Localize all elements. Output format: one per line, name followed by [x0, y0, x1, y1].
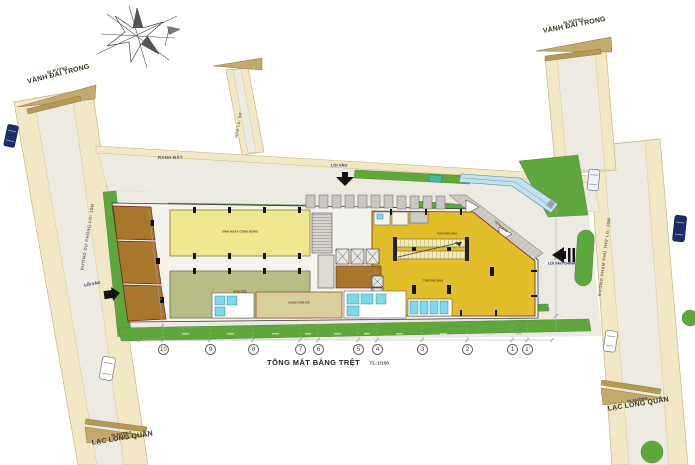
tree-icon — [682, 310, 695, 326]
grid-bubble: 1' — [522, 344, 533, 355]
drawing-title-text: TỔNG MẶT BẰNG TRỆT — [267, 358, 360, 367]
site-plan-canvas: ĐI ĐƯỜNG VÀNH ĐAI TRONG ĐI ĐƯỜNG VÀNH ĐA… — [0, 0, 695, 465]
car-icon — [3, 124, 18, 148]
tree-icon — [641, 441, 663, 463]
grid-bubble: 2 — [462, 344, 473, 355]
grid-bubble: 9 — [205, 344, 216, 355]
bus-shelter — [429, 175, 442, 183]
site-plan-drawing — [0, 0, 695, 465]
lobby-room-label: SẢNH CĂN HỘ — [269, 302, 329, 305]
entrance-main-label: LỐI VÀO CHÍNH — [548, 262, 575, 266]
drawing-title: TỔNG MẶT BẰNG TRỆT TL:1/150 — [230, 352, 430, 370]
boundary-label: RANH ĐẤT — [158, 156, 183, 160]
canopy-columns — [306, 195, 445, 209]
car-icon — [603, 330, 618, 352]
stair-block — [312, 213, 332, 253]
car-icon — [672, 215, 687, 242]
retail-upper-label: THƯƠNG MẠI — [417, 233, 477, 236]
grid-bubble: 1 — [507, 344, 518, 355]
car-icon — [587, 169, 600, 191]
north-access-road — [545, 51, 616, 174]
east-road — [589, 139, 688, 465]
entrance-top-label: LỐI VÀO — [331, 164, 347, 168]
drawing-title-scale: TL:1/150 — [369, 361, 388, 366]
alley-road — [226, 68, 264, 155]
retail-lower-label: THƯƠNG MẠI — [403, 280, 463, 283]
north-compass-icon — [97, 6, 181, 68]
community-room-label: SINH HOẠT CỘNG ĐỒNG — [210, 231, 270, 234]
nursery-room-label: NHÀ TRẺ — [210, 291, 270, 294]
grid-bubble: 10 — [158, 344, 169, 355]
